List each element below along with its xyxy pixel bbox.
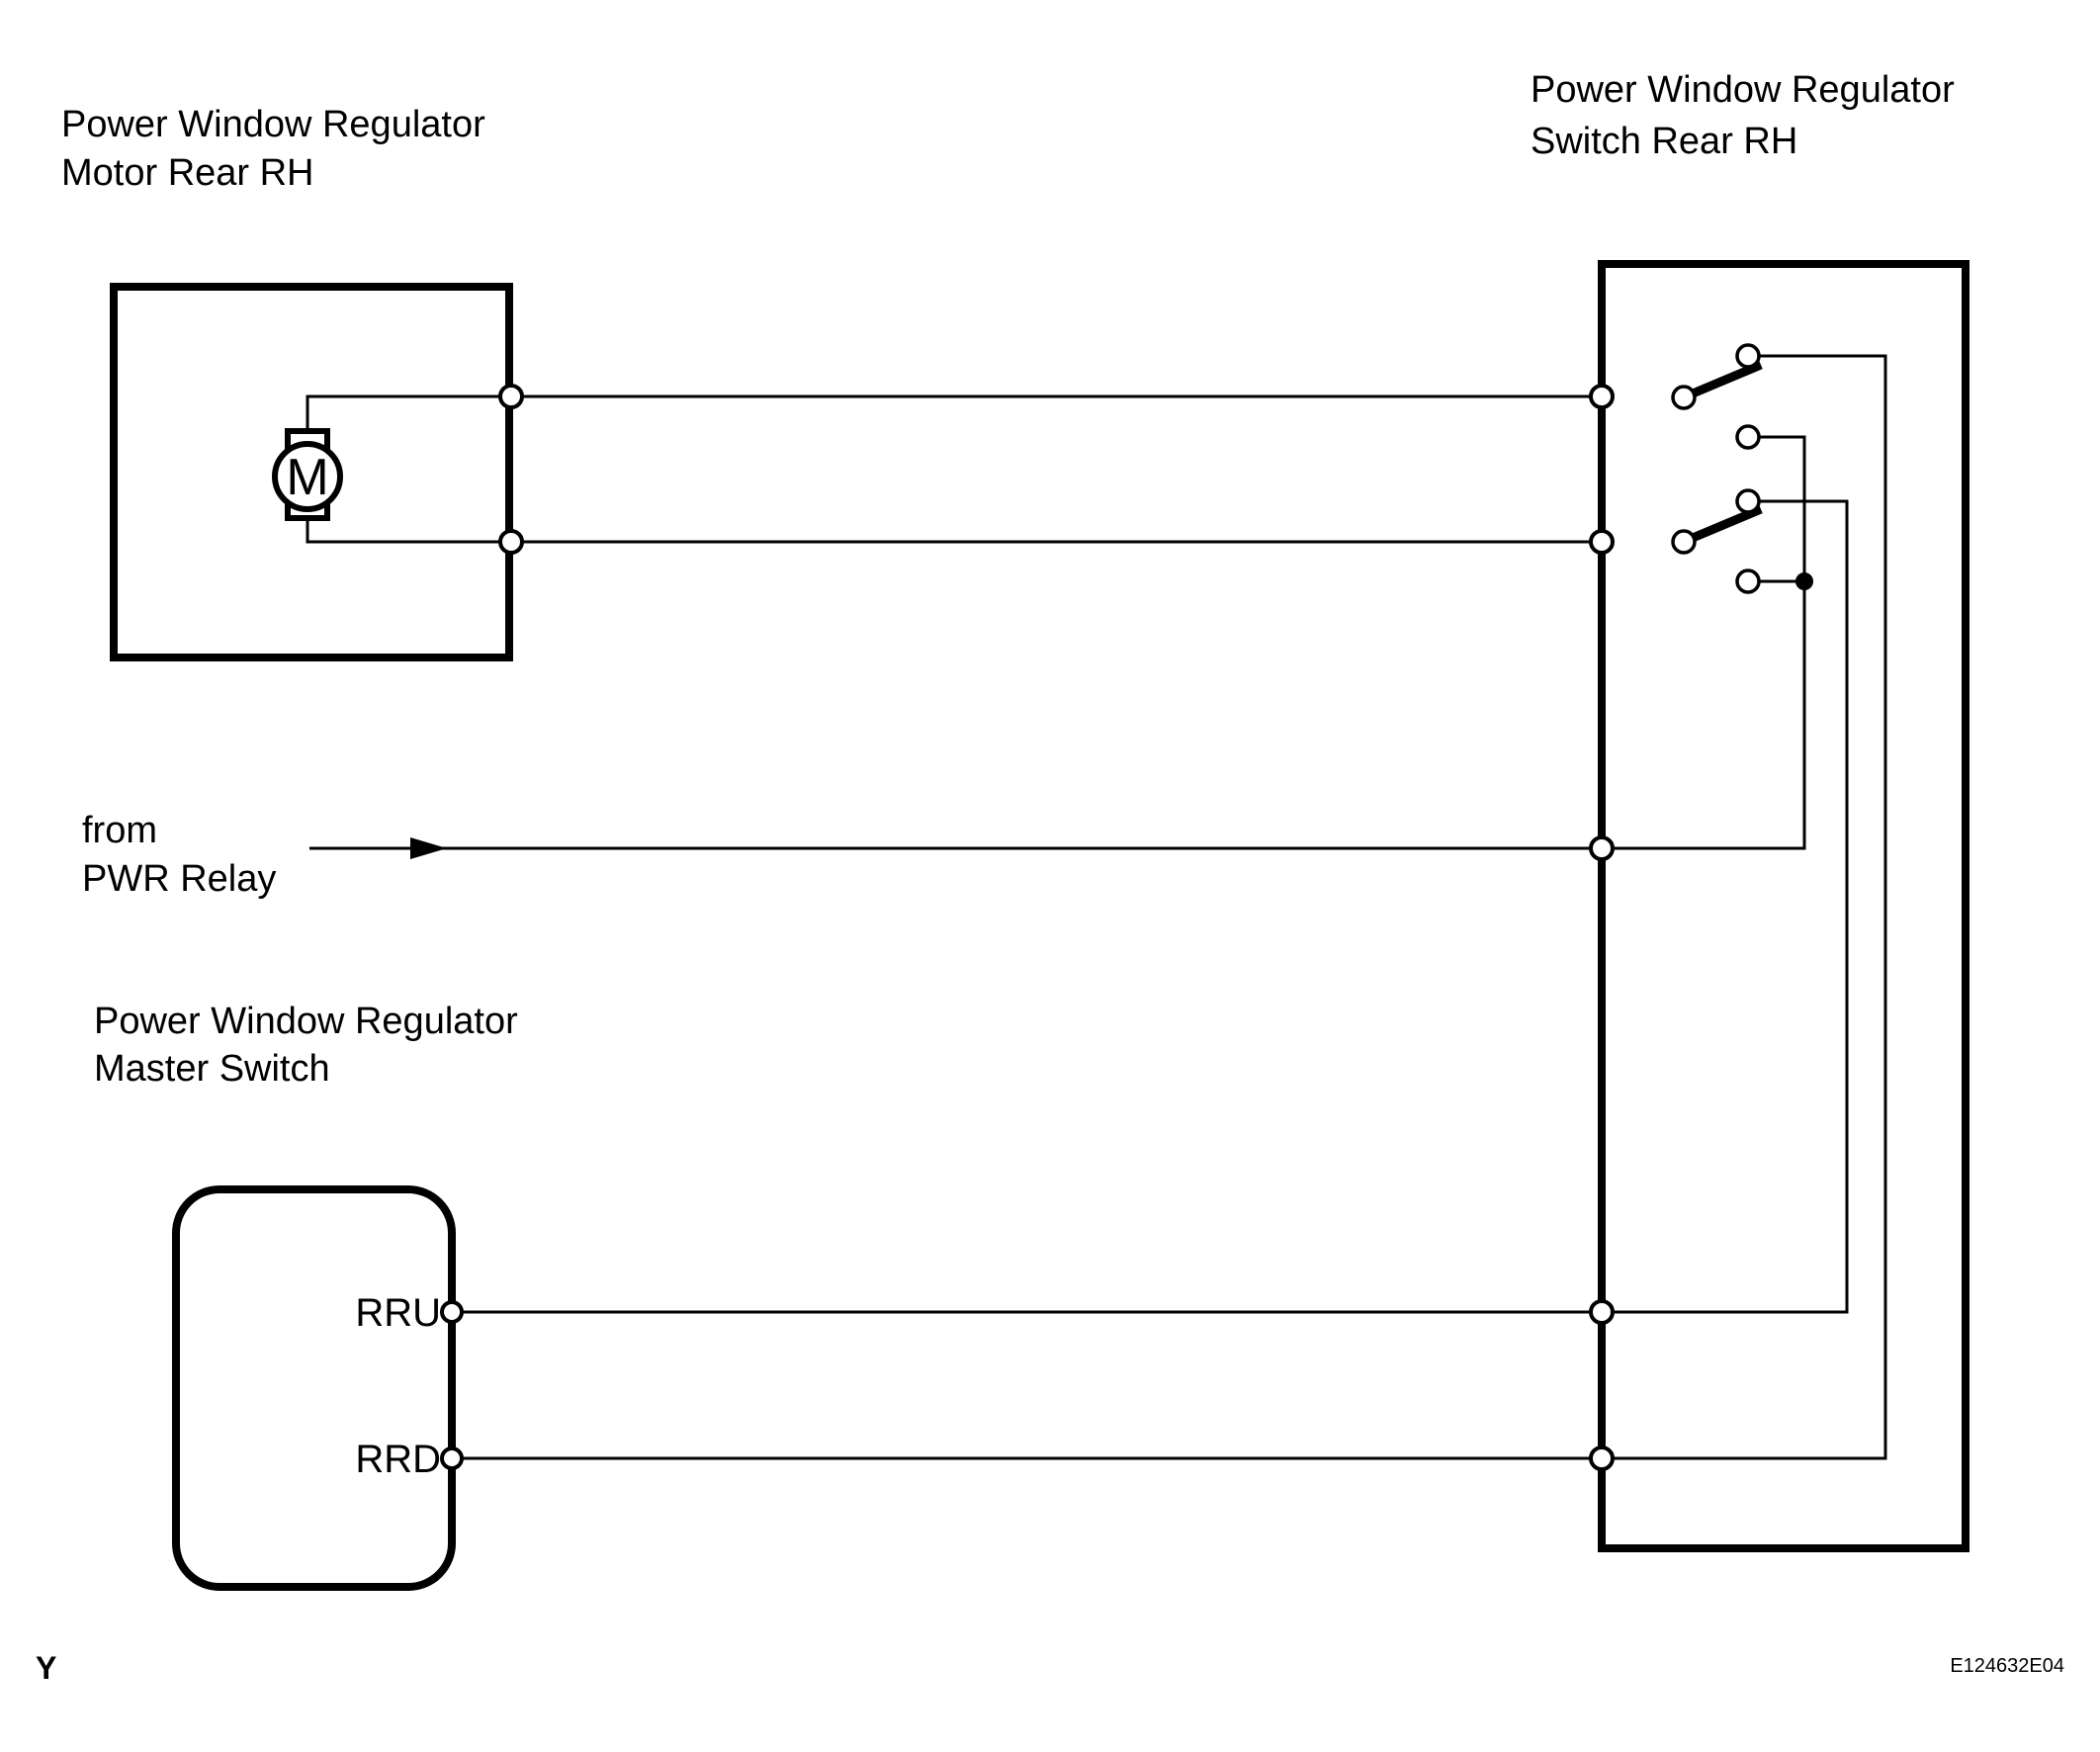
rear-switch-box xyxy=(1602,264,1966,1548)
rear-switch-title-line2: Switch Rear RH xyxy=(1531,121,1797,162)
connector-master-rrd xyxy=(442,1448,462,1468)
rear-switch-title-line1: Power Window Regulator xyxy=(1531,69,1955,111)
master-switch-title-line2: Master Switch xyxy=(94,1048,330,1090)
connector-switch-lower xyxy=(1591,531,1613,553)
wiring-diagram-page: M xyxy=(0,0,2100,1752)
labels: Power Window Regulator Motor Rear RH Pow… xyxy=(36,69,2064,1686)
pin-label-rru: RRU xyxy=(355,1291,441,1335)
connector-switch-pwr xyxy=(1591,837,1613,859)
switch2-down-contact xyxy=(1737,570,1759,592)
connector-nodes xyxy=(442,386,1613,1469)
wiring-diagram-canvas: M xyxy=(0,0,2100,1752)
pwr-relay-arrowhead-icon xyxy=(410,837,447,859)
junction-dot xyxy=(1795,572,1813,590)
switch1-down-contact xyxy=(1737,426,1759,448)
link-rrd-to-up-contact xyxy=(1602,356,1885,1458)
harness-wires xyxy=(309,396,1602,1458)
link-rru-to-up-contact xyxy=(1602,501,1847,1312)
connector-switch-upper xyxy=(1591,386,1613,407)
source-label-line1: from xyxy=(82,810,157,851)
master-switch-component: RRU RRD xyxy=(176,1189,452,1587)
connector-switch-rru xyxy=(1591,1301,1613,1323)
page-marker: Y xyxy=(36,1650,56,1686)
motor-lead-lower xyxy=(307,514,511,542)
source-label-line2: PWR Relay xyxy=(82,858,276,900)
switch-blade-upper xyxy=(1693,365,1761,394)
connector-motor-upper xyxy=(500,386,522,407)
switch1-pivot-contact xyxy=(1673,387,1695,408)
motor-title-line1: Power Window Regulator xyxy=(61,104,485,145)
switch1-up-contact xyxy=(1737,345,1759,367)
motor-lead-upper xyxy=(307,396,511,435)
motor-title-line2: Motor Rear RH xyxy=(61,152,314,194)
connector-switch-rrd xyxy=(1591,1447,1613,1469)
master-switch-box xyxy=(176,1189,452,1587)
motor-component: M xyxy=(114,287,511,657)
motor-symbol-letter: M xyxy=(286,449,328,506)
connector-master-rru xyxy=(442,1302,462,1322)
switch2-pivot-contact xyxy=(1673,531,1695,553)
switch2-up-contact xyxy=(1737,490,1759,512)
connector-motor-lower xyxy=(500,531,522,553)
figure-code: E124632E04 xyxy=(1950,1655,2064,1677)
master-switch-title-line1: Power Window Regulator xyxy=(94,1001,518,1042)
pin-label-rrd: RRD xyxy=(355,1438,441,1481)
rear-switch-component xyxy=(1602,264,1966,1548)
link-pwr-feed xyxy=(1602,437,1804,848)
